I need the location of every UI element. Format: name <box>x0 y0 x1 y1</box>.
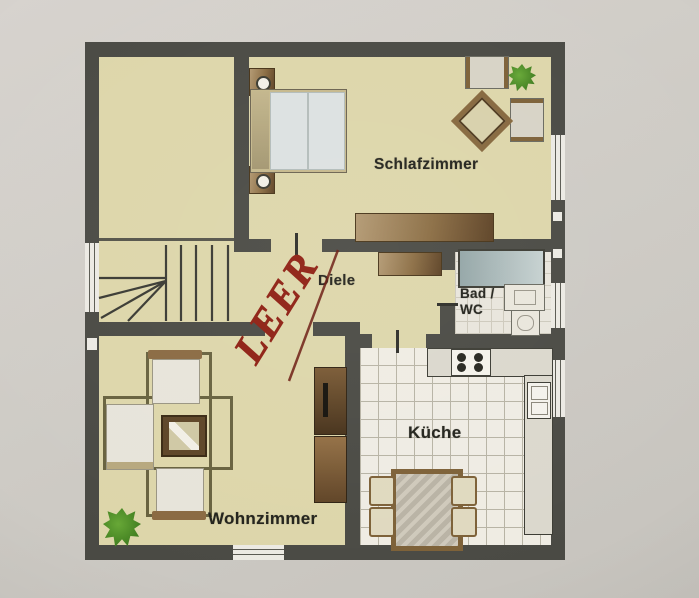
coffee-table <box>161 415 207 457</box>
window-right-bedroom <box>551 135 565 200</box>
sofa <box>106 404 154 470</box>
stair-landing-divider <box>99 238 234 241</box>
mattress-right <box>308 92 345 170</box>
bathtub <box>458 249 545 288</box>
toilet <box>511 310 540 336</box>
room-label-wohnzimmer: Wohnzimmer <box>208 509 317 529</box>
wall-livingroom-top-a <box>99 322 265 336</box>
armchair-top <box>152 359 200 404</box>
dining-chair-3 <box>451 476 477 506</box>
wall-kitchen-top-a <box>360 334 372 348</box>
sofa-edge <box>107 462 153 469</box>
wall-bedroom-left <box>234 57 249 252</box>
window-right-kitchen <box>551 360 565 417</box>
chair-bedroom <box>511 99 543 141</box>
door-mark-bath <box>437 303 458 306</box>
floor-plan: Schlafzimmer Diele Bad / WC Küche Wohnzi… <box>0 0 699 598</box>
tv-cabinet-upper <box>314 367 347 435</box>
room-label-bad-line2: WC <box>460 302 483 317</box>
window-marker-left-small <box>87 338 97 350</box>
lamp-icon <box>256 174 271 189</box>
bed-headboard <box>252 91 269 169</box>
wall-bath-left-a <box>440 239 455 270</box>
window-bottom-livingroom <box>233 545 284 560</box>
dining-chair-4 <box>451 507 477 537</box>
tv-cabinet-lower <box>314 436 347 503</box>
wall-bedroom-bottom-a <box>234 239 271 252</box>
room-label-kueche: Küche <box>408 423 461 443</box>
wall-marker-right-2 <box>553 249 562 258</box>
desk <box>466 57 508 88</box>
room-label-schlafzimmer: Schlafzimmer <box>374 156 478 174</box>
kitchen-sink <box>527 382 551 419</box>
mattress-left <box>270 92 308 170</box>
armchair-top-backrest <box>148 350 202 359</box>
sink-basin <box>531 386 548 400</box>
outer-wall-bottom <box>85 545 565 560</box>
outer-wall-top <box>85 42 565 57</box>
sink-drainer <box>531 402 548 415</box>
door-mark-kitchen <box>396 330 399 353</box>
sideboard-hall <box>378 252 442 276</box>
dining-chair-1 <box>369 476 395 506</box>
armchair-bottom-backrest <box>152 511 206 520</box>
wall-livingroom-top-b <box>313 322 360 336</box>
washbasin <box>504 284 545 311</box>
wall-bath-left-b <box>440 306 455 348</box>
door-mark-bedroom <box>295 233 298 258</box>
wall-livingroom-kitchen <box>345 336 360 546</box>
dining-chair-2 <box>369 507 395 537</box>
window-right-bath <box>551 283 565 328</box>
washbasin-bowl <box>514 290 536 305</box>
toilet-bowl <box>517 315 534 331</box>
wall-marker-right-1 <box>553 212 562 221</box>
window-left <box>85 243 99 312</box>
coffee-table-top <box>169 422 199 450</box>
bed <box>250 89 347 173</box>
cabinet-handle <box>323 383 328 417</box>
wardrobe <box>355 213 494 242</box>
stove-icon <box>451 349 491 376</box>
room-label-bad-line1: Bad / <box>460 286 495 301</box>
room-label-diele: Diele <box>318 272 355 289</box>
armchair-bottom <box>156 468 204 513</box>
